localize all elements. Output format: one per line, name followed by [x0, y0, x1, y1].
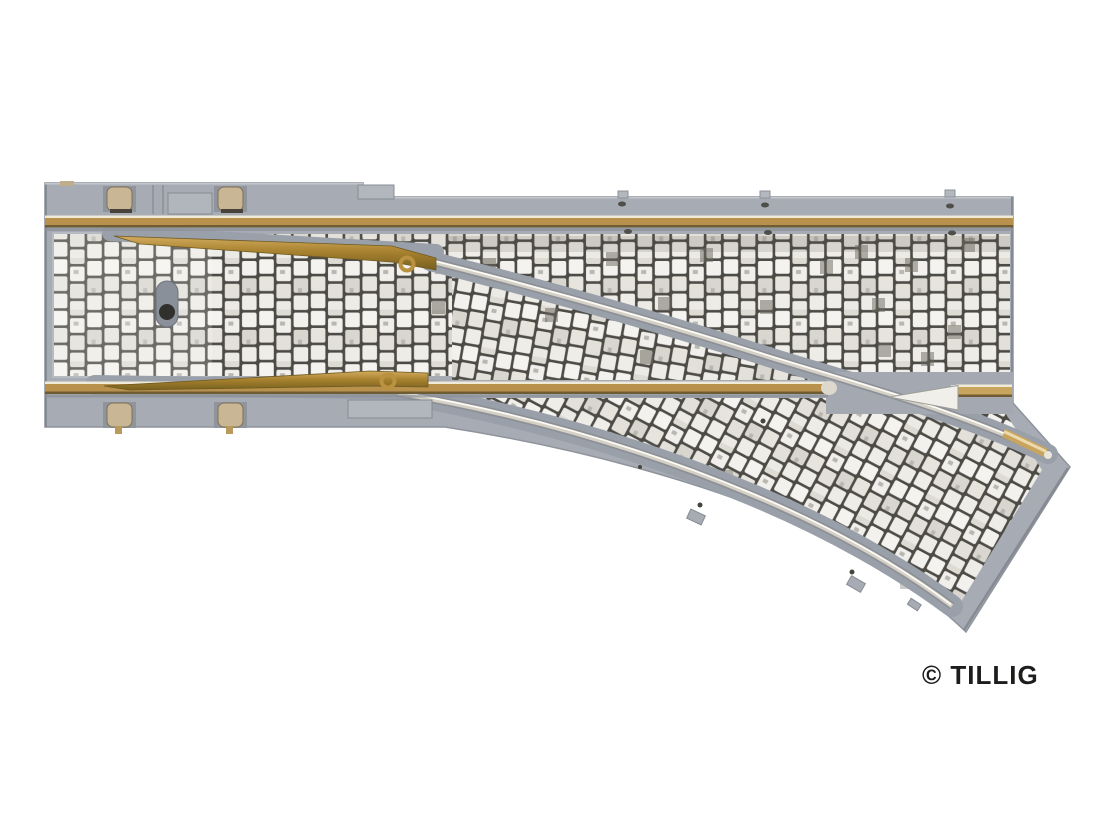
bottom-rail-joiner: [951, 385, 1012, 398]
mounting-slot: [156, 281, 178, 327]
product-photo: © TILLIG: [0, 0, 1100, 825]
top-rail: [45, 216, 1013, 232]
turnout-photo-svg: © TILLIG: [0, 0, 1100, 825]
copyright-watermark: © TILLIG: [922, 660, 1039, 690]
